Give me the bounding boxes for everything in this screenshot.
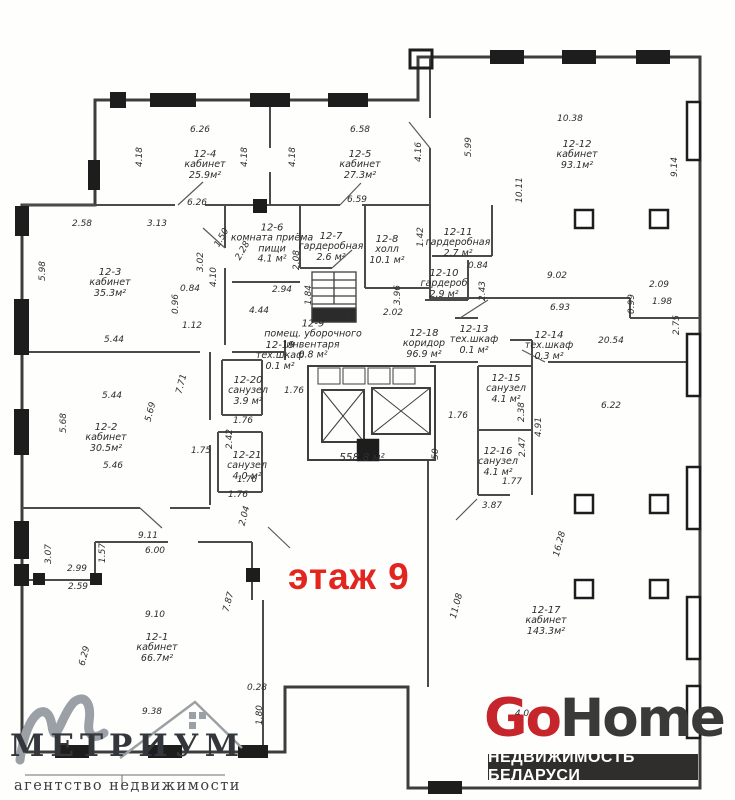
metrium-logo: МЕТРИУМ агентство недвижимости <box>10 660 245 795</box>
floor-number-label: этаж 9 <box>288 556 410 598</box>
columns <box>358 210 668 598</box>
gohome-logo-word: GoHome <box>484 688 724 749</box>
interior-walls <box>22 57 700 752</box>
gohome-go-text: Go <box>484 688 560 749</box>
metrium-logo-tagline: агентство недвижимости <box>10 778 245 794</box>
wall-junction-squares <box>33 160 267 585</box>
gohome-logo: GoHome НЕДВИЖИМОСТЬ БЕЛАРУСИ <box>478 702 702 794</box>
floorplan-scan: 12-1кабинет66.7м²12-2кабинет30.5м²12-3ка… <box>0 0 735 800</box>
gohome-tagline-bar: НЕДВИЖИМОСТЬ БЕЛАРУСИ <box>488 754 698 780</box>
gohome-home-text: Home <box>560 688 724 749</box>
stairs <box>312 272 356 322</box>
metrium-logo-title: МЕТРИУМ <box>10 728 245 764</box>
total-area-label: 558.8 м² <box>339 452 385 464</box>
door-swings <box>140 122 545 548</box>
